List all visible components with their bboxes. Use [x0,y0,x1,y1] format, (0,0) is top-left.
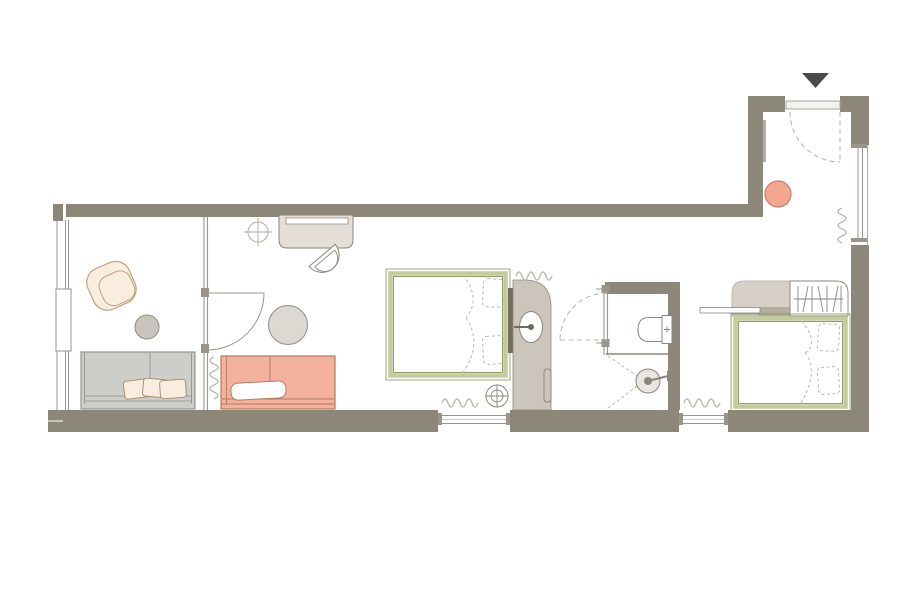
door-hinge-block [201,344,209,353]
bed-frame-inner-line [739,322,843,404]
window-end-cap [506,413,510,425]
wall-shelf [700,308,760,314]
toilet [638,316,672,344]
wardrobe-shadow-band [758,307,790,316]
round-table [269,306,308,345]
balcony-window-mullion [56,289,71,351]
bed-pillow [817,323,839,351]
wall-segment [748,96,785,112]
bed-pillow [817,366,840,394]
bed-frame [736,319,846,407]
bed-frame [391,274,506,376]
wall-segment [840,96,869,112]
bed-outer-line [386,269,510,380]
door-jamb-ticks [596,289,604,343]
lounge-chair [82,257,141,315]
gray-sofa [81,352,195,409]
wall-corner-block [48,422,63,433]
sofa-pillow [231,381,287,401]
wall-segment [53,204,63,221]
bedroom-2 [684,281,850,411]
salmon-sofa [221,356,335,409]
duvet-curves [462,275,474,374]
desk-drawer [286,218,348,224]
bed-2 [731,314,850,411]
wall-segment [63,410,438,432]
shower [608,356,668,408]
shower-slope-lines [608,356,640,408]
side-table-round [135,315,159,339]
desk-chair-outer [309,244,346,279]
wall-corner-block [48,410,63,421]
duvet-curves [800,321,811,404]
balcony-door-swing-arc [207,293,264,350]
bathroom-right-wall [668,294,680,410]
floor-plan [0,0,900,600]
window-end-cap [851,238,867,242]
floor-plan-canvas [0,0,900,600]
window-end-cap [438,413,442,425]
radiator-squiggle [210,357,218,399]
window-end-cap [851,144,867,148]
lounge-chair-outer [82,257,141,315]
toilet-bowl [638,318,662,342]
living-area [210,215,353,409]
sofa-pillow [159,379,186,399]
radiator-squiggle [838,208,846,243]
radiator-squiggle [684,399,720,407]
entry-door-threshold [786,101,840,109]
wardrobe [700,281,848,316]
radiator-squiggle [516,272,552,280]
desk [279,215,353,248]
window-end-cap [724,413,728,425]
wall-segment [851,245,869,432]
bed-outer-line [731,314,850,411]
bed-1 [386,269,514,380]
entry-stool [765,181,791,207]
entrance-marker-icon [802,73,829,88]
vanity [513,272,552,410]
wall-segment [851,112,869,145]
floor-spot-icon [486,385,508,407]
balcony-room [81,257,195,409]
wall-segment [510,410,679,432]
wall-segment [728,410,869,432]
vanity-body [513,280,551,410]
bed-pillow [482,335,504,364]
window-end-cap [679,413,683,425]
wardrobe-open-section [790,281,848,316]
wall-segment [748,96,763,217]
bed-frame-inner-line [394,277,503,373]
desk-chair [309,244,346,279]
radiator-squiggle [442,399,478,407]
entry-door-swing-arc [790,112,840,162]
wall-segment [66,204,757,217]
bathroom-door-swing-arc [560,293,607,340]
faucet-icon [528,324,534,330]
bathroom-top-wall [605,282,680,294]
bathroom [560,285,672,408]
bed-pillow [482,278,504,307]
wall-finish-strip [763,120,766,162]
ceiling-light-icon [244,218,272,246]
